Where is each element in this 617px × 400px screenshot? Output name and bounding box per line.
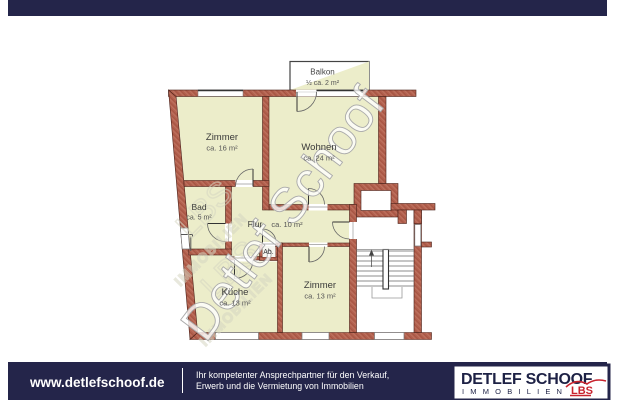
svg-text:Flur: Flur [248,219,263,229]
svg-text:ca. 13 m²: ca. 13 m² [219,299,251,308]
svg-text:Balkon: Balkon [310,68,334,77]
svg-text:Wohnen: Wohnen [301,142,336,153]
svg-text:ca. 13 m²: ca. 13 m² [304,292,336,301]
svg-text:Zimmer: Zimmer [304,280,336,291]
svg-text:IMMOBILIEN: IMMOBILIEN [462,387,568,396]
svg-text:ca. 10 m²: ca. 10 m² [271,220,303,229]
svg-text:ca. 24 m²: ca. 24 m² [303,154,335,163]
svg-text:Ab.: Ab. [263,249,274,256]
svg-text:Küche: Küche [222,287,249,298]
svg-text:½ ca. 2 m²: ½ ca. 2 m² [306,79,340,87]
svg-text:Bad: Bad [191,202,206,212]
svg-text:Ihr kompetenter Ansprechpartne: Ihr kompetenter Ansprechpartner für den … [196,370,389,380]
svg-text:ca. 5 m²: ca. 5 m² [186,215,212,222]
svg-text:Erwerb und die Vermietung von: Erwerb und die Vermietung von Immobilien [196,381,364,391]
svg-text:ca. 16 m²: ca. 16 m² [206,144,238,153]
svg-text:Zimmer: Zimmer [206,132,238,143]
svg-text:www.detlefschoof.de: www.detlefschoof.de [29,375,165,390]
